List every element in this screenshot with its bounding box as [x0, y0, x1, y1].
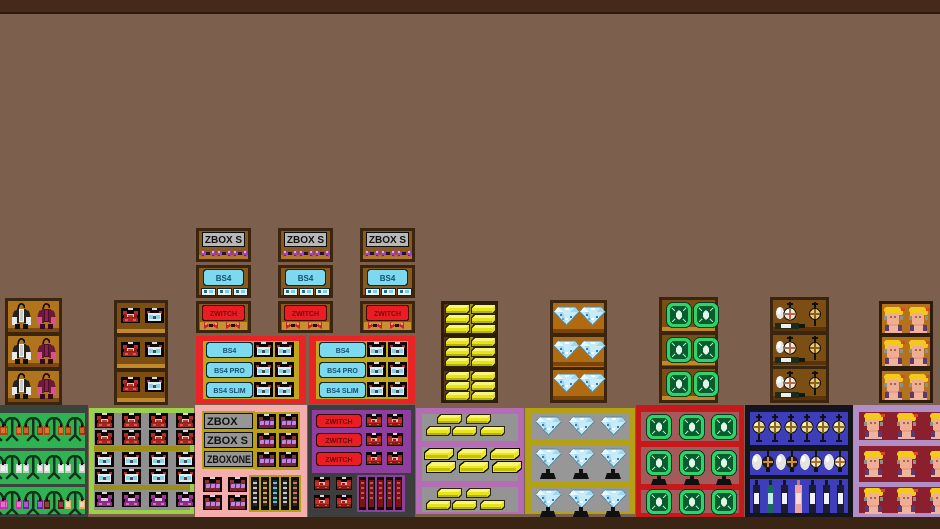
svg-text:BS4 PRO: BS4 PRO	[214, 368, 245, 375]
svg-text:ZWITCH: ZWITCH	[374, 311, 401, 318]
svg-text:ZBOX S: ZBOX S	[205, 235, 243, 246]
svg-text:BS4: BS4	[216, 274, 232, 283]
svg-text:BS4 SLIM: BS4 SLIM	[326, 388, 358, 395]
svg-text:ZWITCH: ZWITCH	[210, 311, 237, 318]
svg-text:ZBOX S: ZBOX S	[369, 235, 407, 246]
svg-text:ZWITCH: ZWITCH	[325, 438, 352, 445]
svg-text:BS4: BS4	[380, 274, 396, 283]
svg-text:ZWITCH: ZWITCH	[325, 457, 352, 464]
svg-text:BS4 SLIM: BS4 SLIM	[213, 388, 245, 395]
svg-text:ZWITCH: ZWITCH	[325, 419, 352, 426]
svg-text:BS4: BS4	[336, 348, 350, 355]
svg-text:ZBOX: ZBOX	[207, 416, 238, 428]
svg-text:ZBOX S: ZBOX S	[207, 435, 248, 447]
svg-text:BS4: BS4	[223, 348, 237, 355]
svg-text:ZBOXONE: ZBOXONE	[207, 454, 251, 466]
svg-text:ZBOX S: ZBOX S	[287, 235, 325, 246]
svg-text:BS4 PRO: BS4 PRO	[327, 368, 358, 375]
svg-text:BS4: BS4	[298, 274, 314, 283]
svg-text:ZWITCH: ZWITCH	[292, 311, 319, 318]
